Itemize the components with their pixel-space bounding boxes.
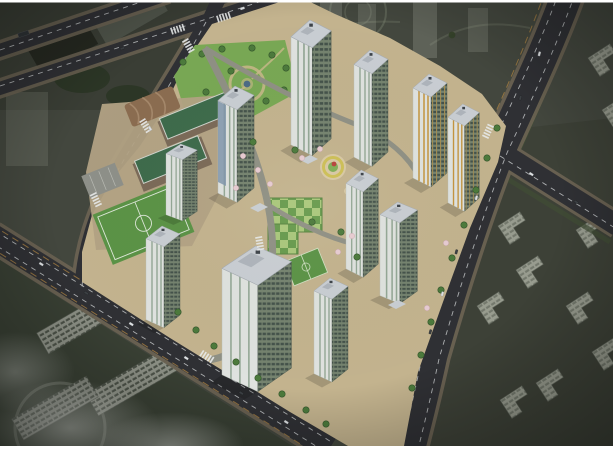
- frame-bottom: [0, 446, 613, 451]
- frame-top: [0, 0, 613, 3]
- rendering-canvas: [0, 0, 613, 451]
- atmosphere: [0, 0, 613, 451]
- aerial-rendering: [0, 0, 613, 451]
- vignette: [0, 0, 613, 451]
